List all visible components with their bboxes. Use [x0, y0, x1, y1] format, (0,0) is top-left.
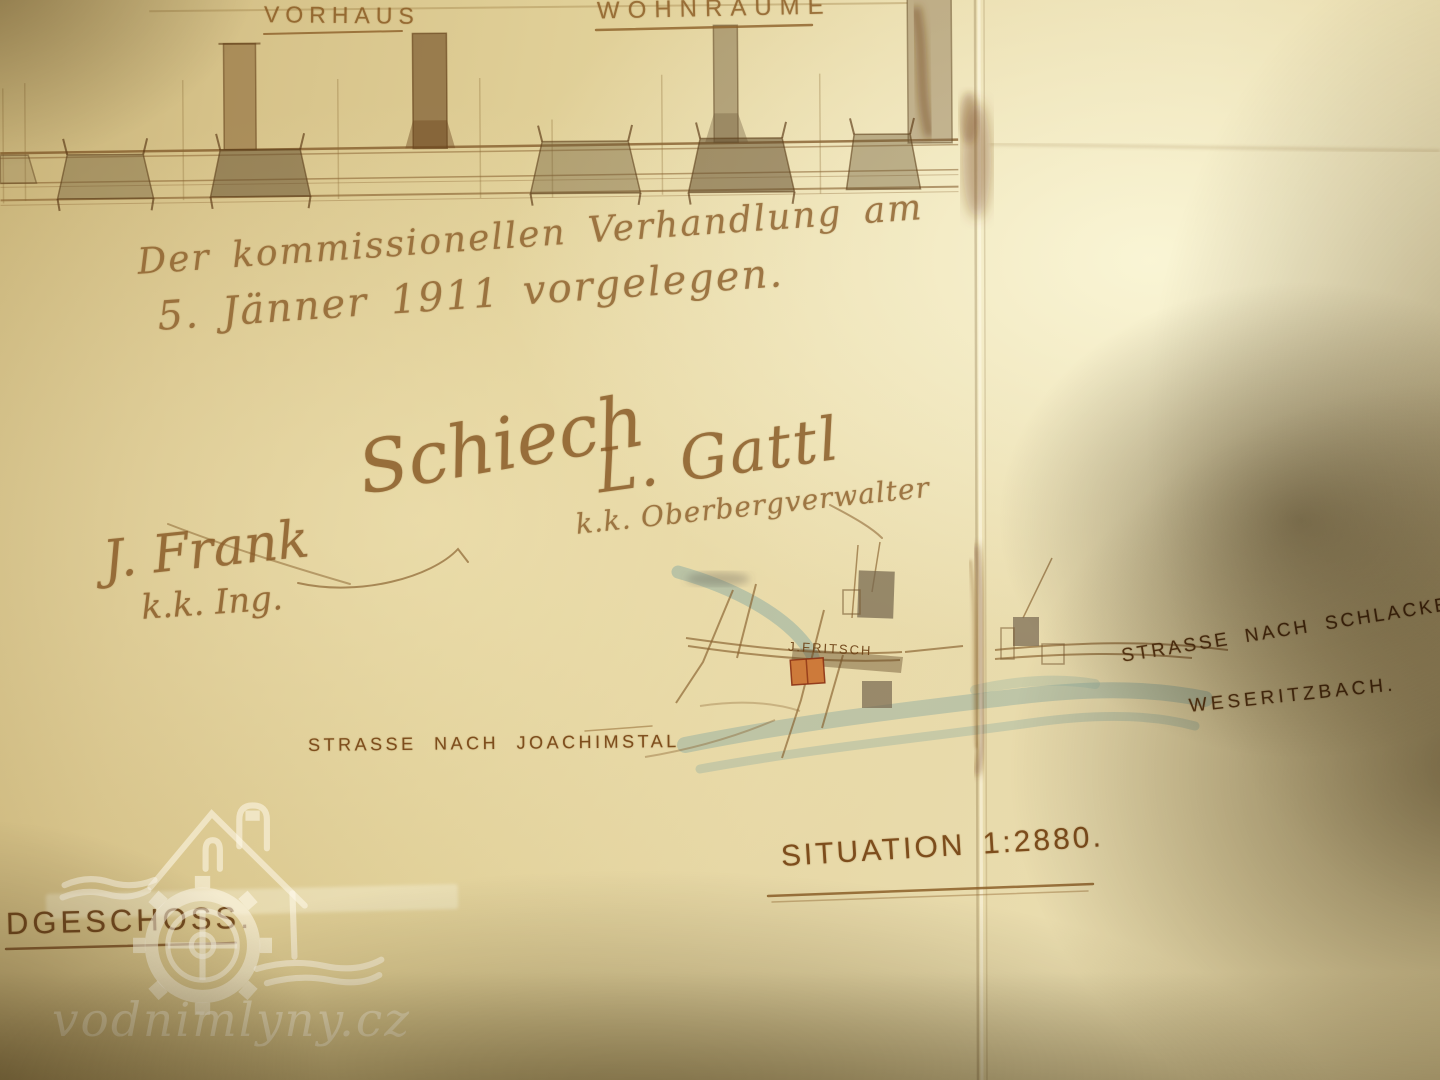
paper-photo: VORHAUS WOHNRÄUME Der kommissionellen Ve…: [0, 0, 1440, 1080]
cross-section-drawing: [0, 0, 959, 211]
fold-crease-vertical: [960, 0, 991, 1080]
map-buildings: [791, 570, 1064, 708]
fold-crease-horizontal: [990, 144, 1440, 151]
room-label-vorhaus: VORHAUS: [264, 1, 420, 30]
map-mill-parcel: [790, 658, 825, 685]
watermark-site-text: vodnimlyny.cz: [52, 993, 411, 1048]
section-foundations: [0, 134, 920, 199]
road-label-joachimstal: STRASSE NACH JOACHIMSTAL: [308, 731, 680, 756]
watermill-logo-icon: [55, 785, 395, 1020]
map-streams: [678, 572, 1205, 769]
